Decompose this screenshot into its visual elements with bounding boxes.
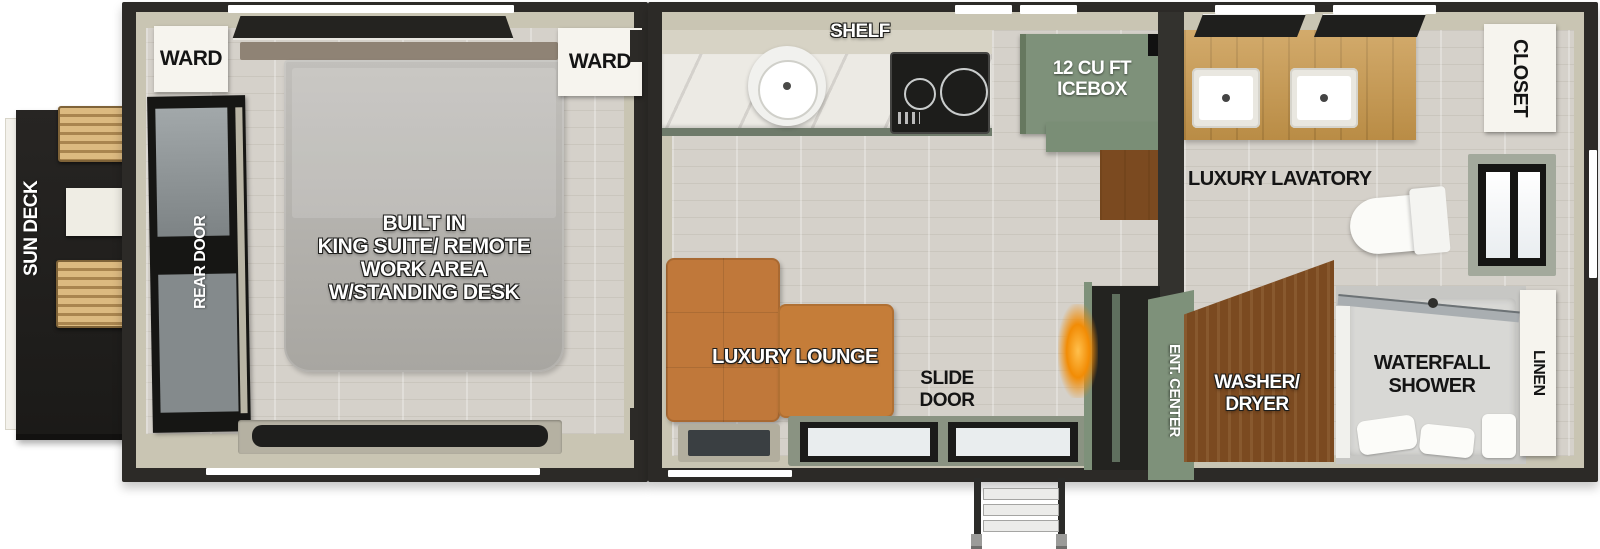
waterfall-shower-label: WATERFALL SHOWER [1352, 352, 1512, 398]
lounge-chair-icon [58, 106, 128, 162]
burner-small [904, 78, 936, 110]
kitchen-sink-icon [748, 46, 826, 126]
bedroom-skylight [232, 16, 514, 40]
icebox-lower-shelf [1046, 122, 1160, 152]
bed-headboard [240, 42, 558, 60]
toilet-tank [1409, 186, 1451, 255]
slide-door-glass [808, 428, 930, 456]
ward-right-label: WARD [569, 50, 631, 73]
slide-door-label: SLIDE DOOR [912, 368, 982, 412]
ward-left-box: WARD [154, 26, 228, 92]
sofa-chaise [666, 258, 780, 422]
ward-left-label: WARD [160, 47, 222, 70]
top-window-strip [1020, 5, 1077, 14]
top-window-strip [955, 5, 1012, 14]
main-bottom-window-strip [668, 470, 792, 477]
kitchen-lower-cabinet [1100, 150, 1158, 220]
sun-deck: SUN DECK [0, 0, 140, 549]
luxury-lavatory-label: LUXURY LAVATORY [1188, 168, 1388, 190]
luxury-lounge-label: LUXURY LOUNGE [700, 346, 890, 368]
toilet-icon [1347, 186, 1453, 262]
media-wall-mullion [1112, 294, 1120, 462]
king-suite-label: BUILT IN KING SUITE/ REMOTE WORK AREA W/… [296, 212, 552, 304]
slide-door-glass [956, 428, 1070, 456]
shower-shelf [1482, 414, 1516, 458]
bedroom-bottom-window-glass [252, 425, 548, 447]
step-tread [983, 504, 1059, 516]
top-window-strip [1333, 5, 1436, 14]
faucet-dot [1222, 94, 1230, 102]
vanity-skylight [1194, 14, 1306, 37]
linen-box: LINEN [1520, 290, 1556, 456]
slide-door-panel [800, 422, 938, 462]
deck-table [66, 188, 124, 236]
faucet-dot [783, 82, 791, 90]
burner-large [940, 68, 988, 116]
floorplan-canvas: SUN DECK BUILT IN KING SUITE/ REMOTE WOR… [0, 0, 1600, 549]
step-rail [974, 478, 981, 534]
bed-blanket [292, 68, 556, 218]
shower-bench [1419, 423, 1476, 458]
step-foot [971, 534, 982, 549]
lounge-chair-icon [56, 260, 128, 328]
step-tread [983, 488, 1059, 500]
ent-center-label: ENT. CENTER [1156, 310, 1182, 470]
closet-box: CLOSET [1484, 24, 1556, 132]
living-window-glass [688, 430, 770, 456]
step-tread [983, 520, 1059, 532]
lavatory-window-pane [1518, 172, 1540, 258]
vanity-skylight [1314, 14, 1426, 37]
step-foot [1056, 534, 1067, 549]
slide-door-panel [948, 422, 1078, 462]
top-window-strip [1215, 5, 1315, 14]
shelf-label: SHELF [812, 22, 908, 43]
linen-label: LINEN [1529, 350, 1547, 396]
washer-dryer-label: WASHER/ DRYER [1192, 372, 1322, 416]
bedroom-bottom-window-strip [206, 468, 540, 475]
bedroom-top-window [228, 5, 514, 13]
rear-door-label: REAR DOOR [192, 200, 218, 324]
sink-basin [758, 60, 818, 120]
icebox-label: 12 CU FT ICEBOX [1032, 58, 1152, 100]
shower-door-handle [1428, 298, 1438, 308]
divider-wall [1158, 12, 1184, 304]
entry-steps [965, 478, 1075, 548]
fireplace-icon [1058, 304, 1098, 398]
cooktop-knobs [898, 112, 920, 124]
closet-label: CLOSET [1509, 39, 1531, 117]
cooktop-icon [890, 52, 990, 134]
vanity-sink-icon [1192, 68, 1260, 128]
sun-deck-label: SUN DECK [22, 172, 50, 284]
shower-curb [1336, 306, 1350, 458]
right-wall-window-strip [1589, 150, 1597, 278]
vanity-sink-icon [1290, 68, 1358, 128]
faucet-dot [1320, 94, 1328, 102]
step-rail [1058, 478, 1065, 534]
lavatory-window-pane [1486, 172, 1510, 258]
